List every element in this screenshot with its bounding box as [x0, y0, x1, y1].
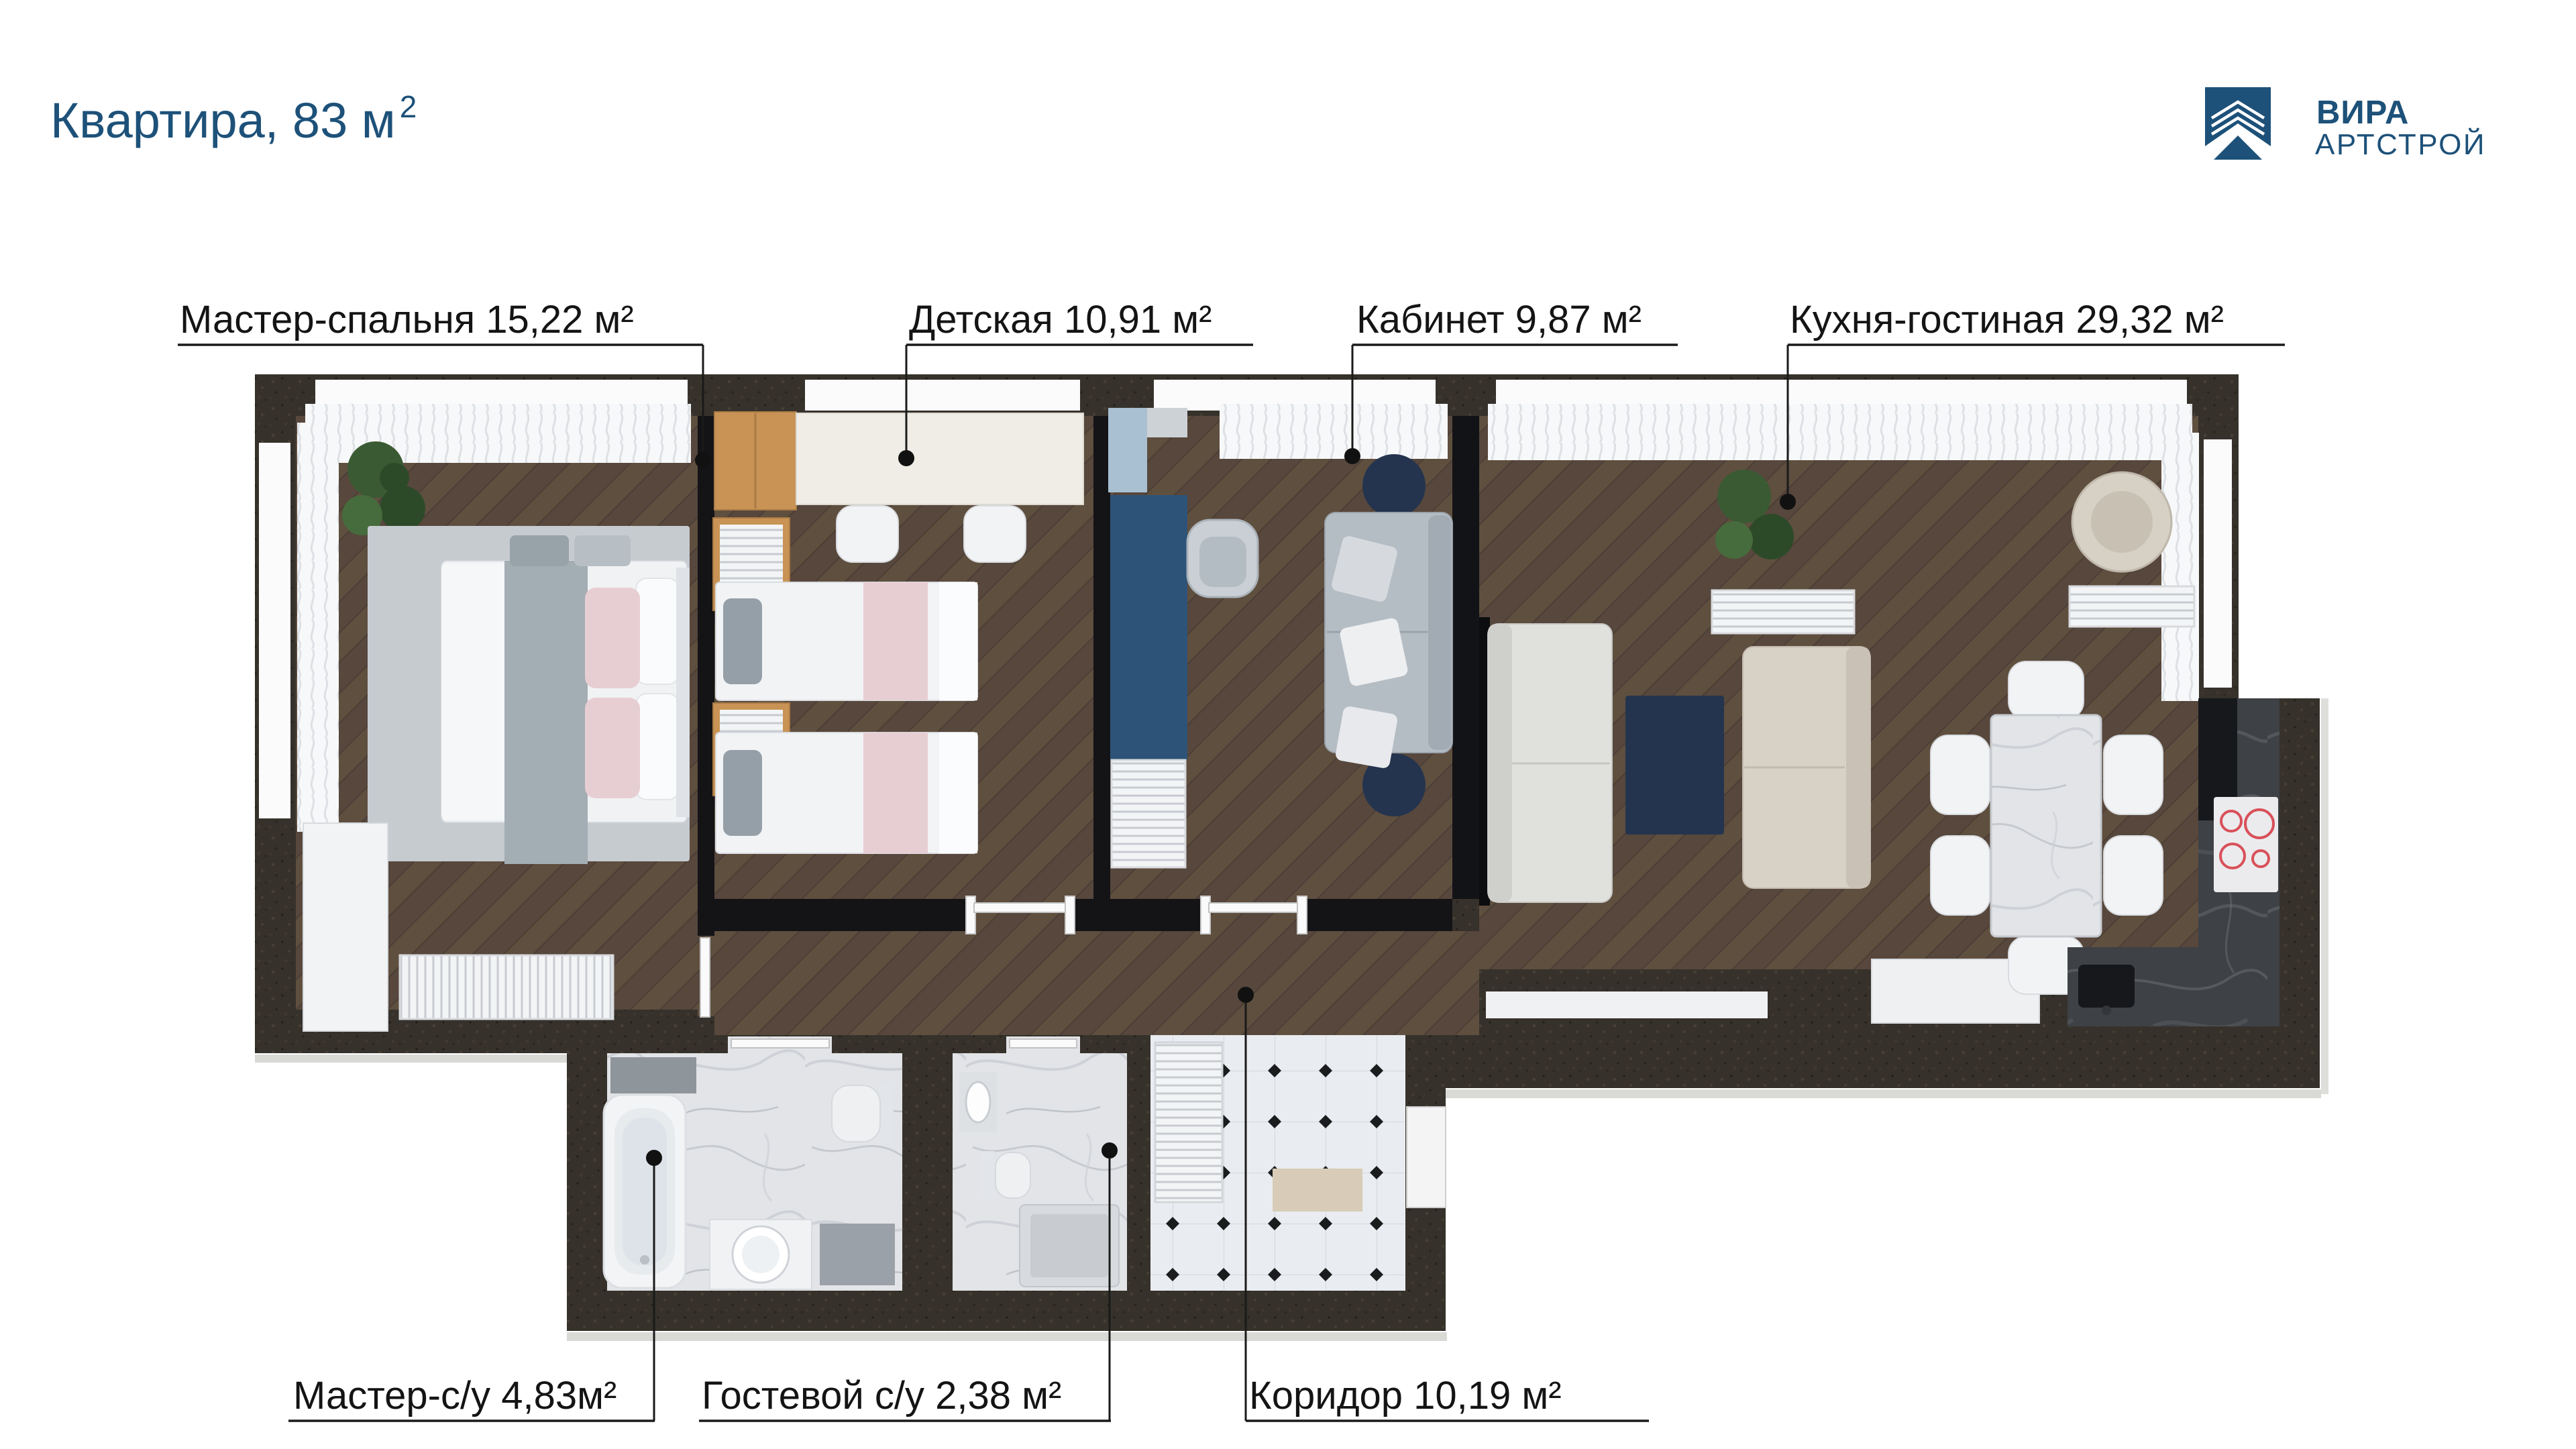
pillow: [723, 598, 762, 684]
folded-blanket-1: [510, 535, 569, 566]
leader-dot-kitchen-living: [1780, 494, 1796, 510]
edge-highlight-right-bottom: [1446, 1089, 2321, 1098]
curtain-right: [2161, 433, 2199, 701]
label-kids-room: Детская 10,91 м²: [909, 298, 1212, 341]
wall-master-corridor: [698, 416, 714, 936]
page-title-text: Квартира, 83 м: [50, 93, 396, 148]
edge-highlight-protrusion-bottom: [567, 1332, 1447, 1341]
logo-name-line2: АРТСТРОЙ: [2315, 127, 2486, 161]
dining-chair-left-2: [1931, 836, 1990, 915]
pink-blanket: [863, 733, 928, 853]
label-corridor: Коридор 10,19 м²: [1249, 1374, 1562, 1417]
sofa-beige: [1743, 647, 1870, 888]
wall-kids-bottom-left: [714, 899, 971, 931]
bowl: [832, 1085, 880, 1142]
wardrobe-white: [303, 823, 388, 1031]
office-door-jamb-left: [1201, 896, 1210, 934]
pink-pillow-1: [585, 588, 640, 688]
backrest: [1428, 515, 1451, 750]
label-kitchen-living: Кухня-гостиная 29,32 м²: [1790, 298, 2224, 341]
dining-chair-right-2: [2104, 836, 2163, 915]
lounge-side-window: [2204, 439, 2232, 688]
folded-blanket-2: [574, 535, 631, 566]
radiator-left: [1712, 590, 1854, 633]
radiator: [400, 955, 613, 1019]
pink-blanket: [863, 582, 928, 700]
kitchen-sink: [2078, 965, 2135, 1008]
label-master-bathroom: Мастер-с/у 4,83м²: [293, 1374, 616, 1417]
office-sofa: [1325, 513, 1452, 769]
leader-dot-kids-room: [898, 450, 914, 466]
wall-office-kitchen: [1452, 416, 1479, 899]
label-guest-bathroom: Гостевой с/у 2,38 м²: [702, 1374, 1061, 1417]
drain: [640, 1255, 649, 1265]
vanity: [710, 1220, 812, 1289]
doormat: [1273, 1169, 1362, 1212]
dining-chair-top: [2008, 661, 2084, 719]
leader-dot-master-bedroom: [695, 452, 711, 468]
master-side-window: [259, 443, 290, 818]
blanket-edge: [939, 733, 977, 853]
label-master-bedroom: Мастер-спальня 15,22 м²: [180, 298, 634, 341]
toilet: [982, 1151, 1030, 1199]
kids-bed-1: [716, 582, 977, 700]
sofa-pillow-2: [1339, 617, 1409, 687]
page-title-superscript: 2: [400, 89, 417, 124]
sofa-gray: [1488, 624, 1612, 902]
edge-highlight-right: [2321, 698, 2328, 1094]
slatted-unit: [1112, 760, 1185, 867]
blanket-edge: [939, 582, 977, 700]
cistern: [879, 1084, 894, 1143]
logo-mark-icon: ВИРА АРТСТРОЙ: [2205, 87, 2486, 161]
armchair: [1187, 520, 1258, 597]
backrest: [1488, 624, 1512, 902]
office-door-leaf: [1209, 903, 1297, 912]
kids-door-jamb-right: [1065, 896, 1075, 934]
floorplan: Мастер-спальня 15,22 м² Детская 10,91 м²…: [178, 298, 2328, 1421]
pink-pillow-2: [585, 698, 640, 798]
kids-bed-2: [716, 733, 977, 853]
master-door-leaf: [700, 938, 710, 1017]
floor-plan-page: Квартира, 83 м2 ВИРА АРТСТРОЙ: [0, 0, 2576, 1449]
dining-table: [1991, 715, 2101, 936]
page-title: Квартира, 83 м2: [50, 89, 417, 148]
dining-chair-right-1: [2104, 735, 2163, 814]
leader-dot-guest-bathroom: [1102, 1142, 1118, 1159]
curtain-top: [1220, 404, 1448, 459]
curtain-top: [1488, 404, 2192, 460]
glass-panel: [1108, 408, 1147, 492]
sink-basin: [742, 1236, 780, 1273]
desk: [796, 413, 1083, 504]
guest-bath-door-leaf: [1010, 1039, 1077, 1048]
niche-shelf: [610, 1057, 696, 1093]
leader-dot-corridor: [1238, 987, 1254, 1003]
desk-chair-2: [964, 506, 1026, 562]
kids-window: [805, 380, 1080, 411]
leader-dot-master-bathroom: [646, 1150, 662, 1166]
curtain-left: [297, 423, 339, 832]
lounge-chair: [2072, 472, 2171, 572]
backrest: [1846, 647, 1870, 888]
office-door-jamb-right: [1297, 896, 1307, 934]
toilet: [832, 1084, 894, 1143]
kids-door-jamb-left: [966, 896, 975, 934]
washing-machine: [1020, 1205, 1119, 1287]
master-bath-door-leaf: [731, 1039, 829, 1048]
faucet: [2102, 1006, 2111, 1015]
sofa-pillow-3: [1335, 706, 1399, 769]
sink-unit: [959, 1072, 997, 1132]
white-pillow-1: [636, 578, 679, 684]
duvet: [441, 563, 513, 820]
shoe-rack: [1155, 1042, 1222, 1202]
pouf-1: [1362, 454, 1426, 517]
bowl: [996, 1152, 1030, 1198]
shelf-top: [1147, 408, 1187, 437]
cistern: [982, 1151, 994, 1199]
white-pillow-2: [636, 694, 679, 800]
radiator-right: [2070, 586, 2194, 627]
wall-office-bottom-left: [1110, 899, 1206, 931]
coffee-table: [1625, 696, 1724, 835]
logo-name-line1: ВИРА: [2316, 95, 2409, 131]
headboard: [676, 568, 690, 817]
edge-highlight-left-bottom: [255, 1055, 568, 1063]
pillow: [723, 750, 762, 836]
entry-door: [1407, 1107, 1446, 1207]
gray-throw: [504, 561, 588, 864]
label-office: Кабинет 9,87 м²: [1356, 298, 1642, 341]
basin: [966, 1082, 990, 1122]
bathtub: [604, 1095, 686, 1288]
induction-hob: [2214, 797, 2278, 892]
kids-door-leaf: [974, 903, 1065, 912]
master-bed: [441, 535, 690, 864]
blue-cabinet: [1110, 495, 1187, 760]
company-logo: ВИРА АРТСТРОЙ: [2205, 87, 2486, 161]
bath-mat: [820, 1224, 895, 1285]
wall-office-bottom-right: [1299, 899, 1452, 931]
desk-chair-1: [837, 506, 898, 562]
dining-chair-left-1: [1931, 735, 1990, 814]
corridor-wood-floor: [714, 931, 1479, 1035]
wall-kids-office: [1093, 416, 1110, 899]
leader-dot-office: [1344, 448, 1360, 464]
window-bench: [1486, 991, 1768, 1018]
